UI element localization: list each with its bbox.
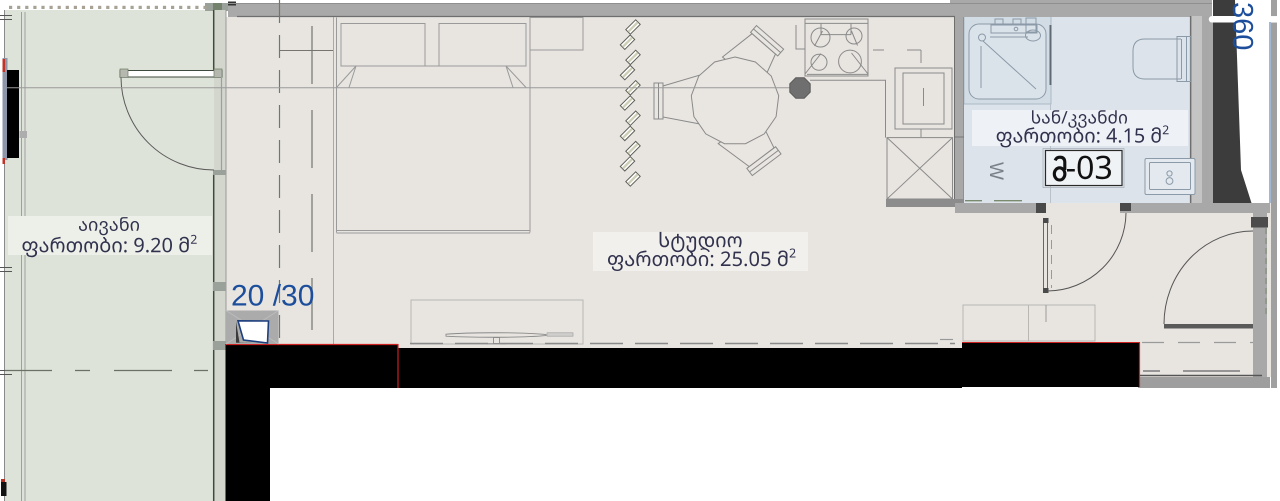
svg-text:W: W (985, 162, 1006, 180)
svg-text:20 /30: 20 /30 (231, 280, 314, 313)
svg-text:360: 360 (1226, 2, 1258, 50)
